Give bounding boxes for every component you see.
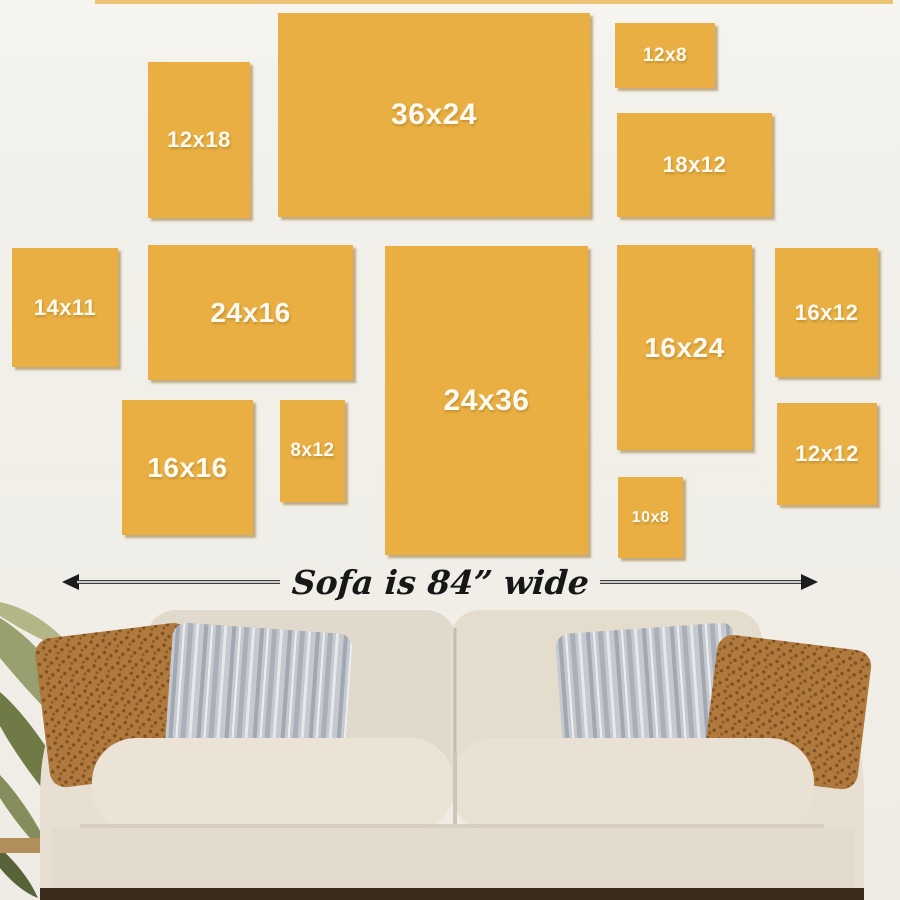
canvas-size-label: 12x18 <box>167 127 231 153</box>
canvas-box-12x18: 12x18 <box>148 62 250 218</box>
canvas-size-label: 16x12 <box>795 300 859 326</box>
canvas-box-24x36: 24x36 <box>385 246 588 555</box>
canvas-size-label: 12x8 <box>643 45 687 67</box>
arrow-right-icon <box>801 574 818 590</box>
canvas-box-14x11: 14x11 <box>12 248 118 367</box>
canvas-size-label: 36x24 <box>391 98 477 132</box>
canvas-size-label: 18x12 <box>663 152 727 178</box>
canvas-size-label: 16x24 <box>644 332 724 364</box>
canvas-size-label: 24x36 <box>444 384 530 418</box>
floor-shadow <box>40 888 864 900</box>
sofa-seat-cushion-right <box>450 738 814 833</box>
canvas-box-16x16: 16x16 <box>122 400 253 535</box>
canvas-size-label: 8x12 <box>290 440 334 462</box>
canvas-size-label: 12x12 <box>795 441 859 467</box>
canvas-box-10x8: 10x8 <box>618 477 683 558</box>
canvas-box-8x12: 8x12 <box>280 400 345 502</box>
canvas-box-24x16: 24x16 <box>148 245 353 380</box>
canvas-size-label: 24x16 <box>210 297 290 329</box>
sofa-width-label: Sofa is 84” wide <box>290 563 590 602</box>
sofa-seat-cushion-left <box>92 738 454 833</box>
sofa-illustration <box>0 600 900 900</box>
arrow-line-left <box>77 580 280 584</box>
canvas-box-16x24: 16x24 <box>617 245 752 450</box>
canvas-size-label: 16x16 <box>147 452 227 484</box>
canvas-size-label: 14x11 <box>34 295 96 321</box>
cropped-canvas-strip <box>95 0 893 4</box>
arrow-line-right <box>600 580 803 584</box>
size-guide-scene: 12x18 36x24 12x8 18x12 14x11 24x16 24x36… <box>0 0 900 900</box>
canvas-box-36x24: 36x24 <box>278 13 590 217</box>
sofa-width-dimension: Sofa is 84” wide <box>62 560 818 604</box>
sofa-base <box>52 828 854 894</box>
canvas-box-12x12: 12x12 <box>777 403 877 505</box>
canvas-box-12x8: 12x8 <box>615 23 715 88</box>
canvas-box-16x12: 16x12 <box>775 248 878 377</box>
canvas-size-label: 10x8 <box>632 509 670 527</box>
canvas-box-18x12: 18x12 <box>617 113 772 217</box>
